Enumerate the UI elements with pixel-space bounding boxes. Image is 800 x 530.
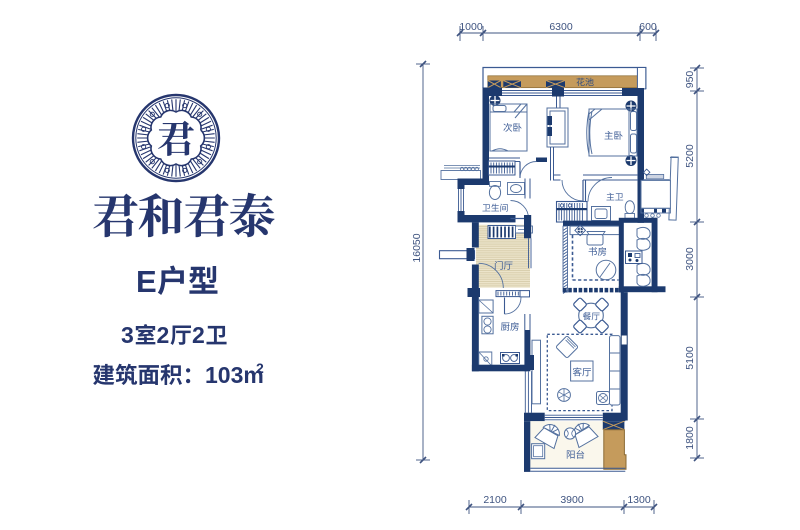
svg-text:600: 600 <box>639 21 657 33</box>
svg-text:2: 2 <box>157 322 170 348</box>
svg-text:16050: 16050 <box>411 233 423 262</box>
svg-text:6300: 6300 <box>549 21 573 33</box>
svg-text:E: E <box>136 264 157 299</box>
svg-text:2: 2 <box>256 360 264 376</box>
svg-text:1300: 1300 <box>627 494 651 506</box>
svg-text:5200: 5200 <box>684 144 696 168</box>
svg-text:3000: 3000 <box>684 247 696 271</box>
svg-text:5100: 5100 <box>684 346 696 370</box>
svg-text:103m: 103m <box>205 362 264 388</box>
svg-text:950: 950 <box>684 71 696 89</box>
svg-text:3900: 3900 <box>560 494 584 506</box>
svg-text:2: 2 <box>192 322 205 348</box>
svg-text:1800: 1800 <box>684 426 696 450</box>
svg-text:2100: 2100 <box>483 494 507 506</box>
svg-text:3: 3 <box>121 322 134 348</box>
svg-text:1000: 1000 <box>459 21 483 33</box>
